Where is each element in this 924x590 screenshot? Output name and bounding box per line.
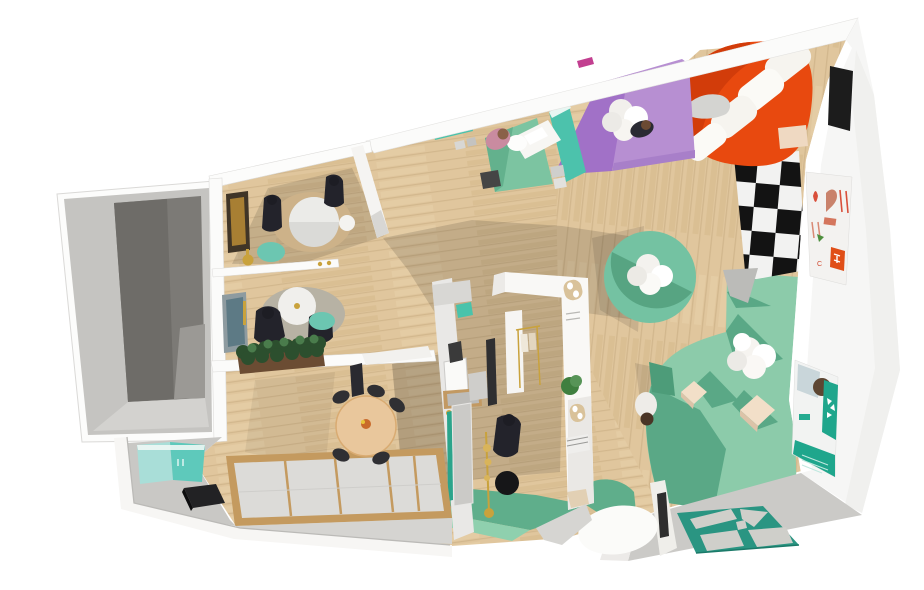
svg-text:C: C bbox=[817, 261, 822, 268]
